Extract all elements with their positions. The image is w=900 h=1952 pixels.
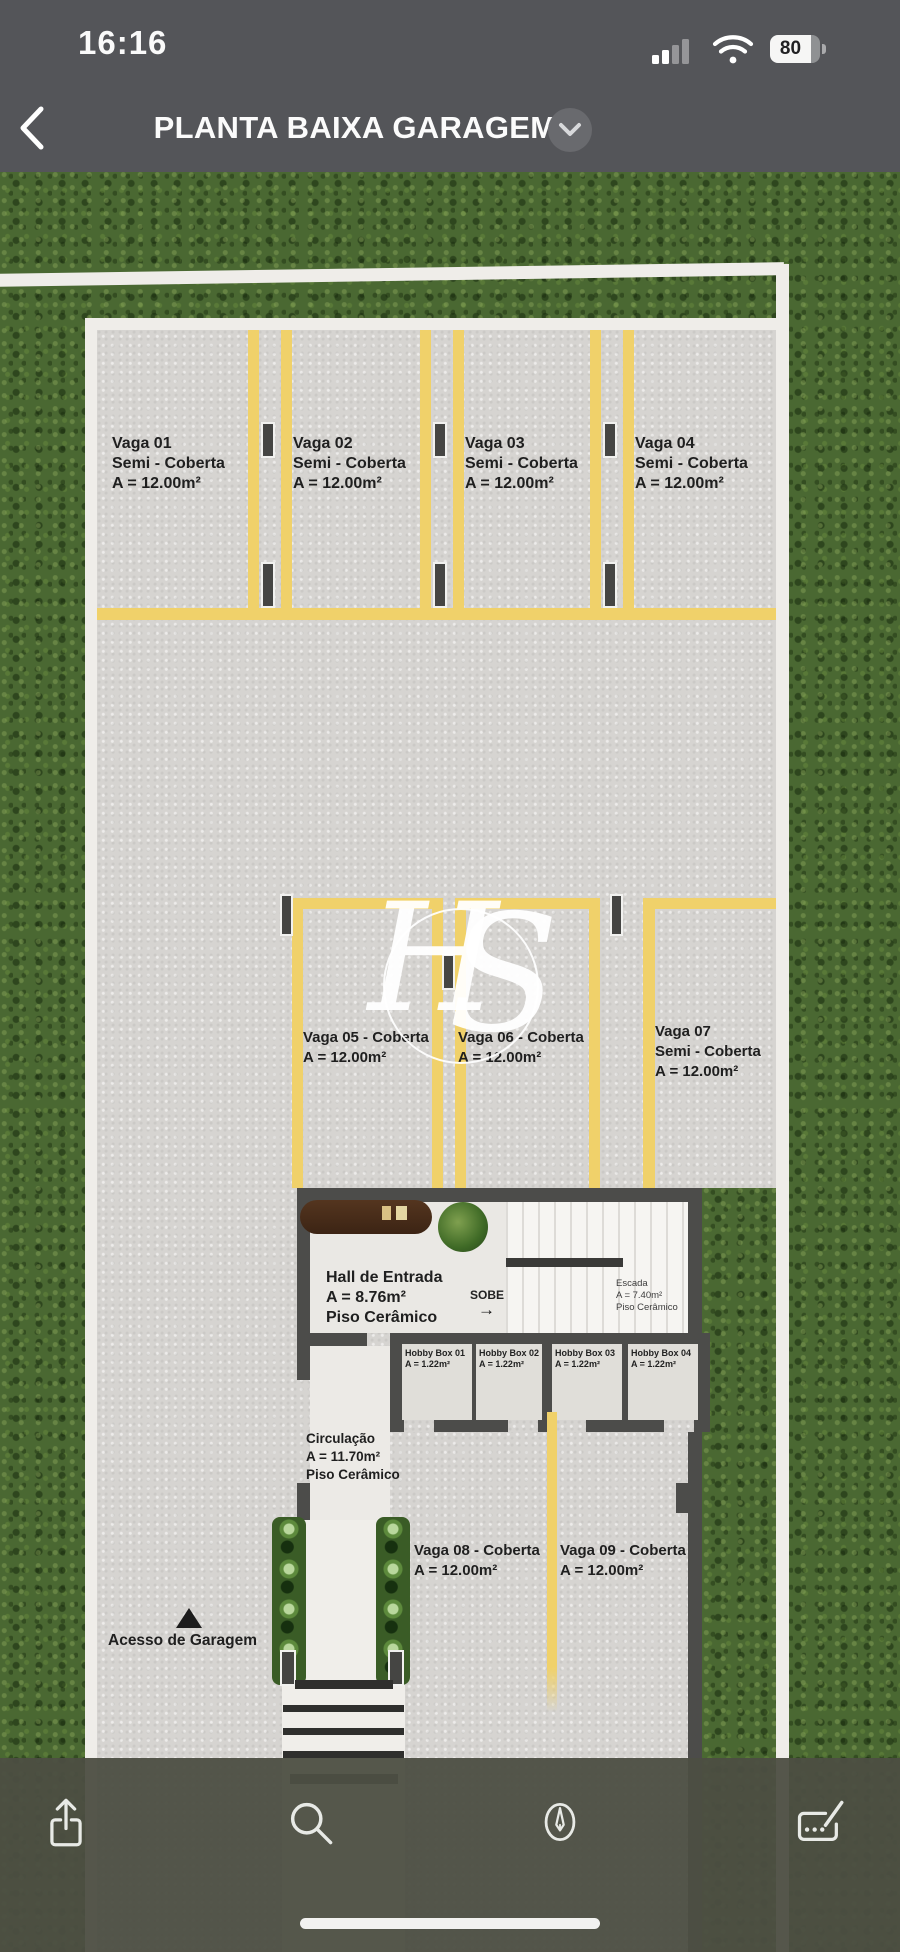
bottom-toolbar <box>0 1758 900 1952</box>
chevron-down-icon <box>558 122 582 138</box>
stripe-line <box>292 898 303 1188</box>
hall-wall-bottom <box>297 1333 367 1346</box>
circulacao-label: CirculaçãoA = 11.70m²Piso Cerâmico <box>306 1430 400 1484</box>
stripe-line <box>547 1412 557 1712</box>
sobe-label: SOBE <box>448 1288 504 1302</box>
stripe-line <box>420 330 431 620</box>
step-edge <box>283 1751 404 1758</box>
watermark-letter-s: S <box>448 894 559 1056</box>
door-opening <box>664 1420 694 1432</box>
column-post <box>261 562 275 608</box>
stripe-line <box>643 898 655 1188</box>
header: 16:16 80 PLANTA BAIXA GARAGEM <box>0 0 900 172</box>
hobby-box-label-01: Hobby Box 01A = 1.22m² <box>405 1348 465 1370</box>
share-button[interactable] <box>40 1796 92 1848</box>
stripe-line <box>281 330 292 620</box>
site-wall-left <box>85 318 97 1952</box>
cellular-signal-icon <box>652 34 700 64</box>
stripe-line <box>590 330 601 620</box>
status-time: 16:16 <box>78 24 167 62</box>
share-icon <box>40 1796 92 1848</box>
battery-percent: 80 <box>770 35 811 63</box>
search-button[interactable] <box>284 1796 336 1848</box>
title-dropdown-button[interactable] <box>548 108 592 152</box>
stall-label-vaga-09: Vaga 09 - CobertaA = 12.00m² <box>560 1541 686 1581</box>
signature-form-button[interactable] <box>793 1796 845 1848</box>
stripe-line <box>248 330 259 620</box>
column-post <box>433 562 447 608</box>
site-wall-top <box>85 318 776 330</box>
stripe-line <box>643 898 776 909</box>
column-post <box>603 422 617 458</box>
door-opening <box>404 1420 434 1432</box>
stall-label-vaga-02: Vaga 02Semi - CobertaA = 12.00m² <box>293 434 406 494</box>
markup-pen-button[interactable] <box>534 1796 586 1848</box>
stripe-line <box>589 898 600 1188</box>
column-post <box>261 422 275 458</box>
column-post <box>610 894 623 936</box>
door-opening <box>508 1420 538 1432</box>
site-wall-right <box>776 264 789 1952</box>
step-edge <box>283 1705 404 1712</box>
bench-decor <box>396 1206 407 1220</box>
step-edge <box>295 1680 393 1689</box>
hobby-box-label-02: Hobby Box 02A = 1.22m² <box>479 1348 539 1370</box>
site-path-diagonal <box>0 262 784 287</box>
markup-pen-icon <box>534 1796 586 1848</box>
phone-screen: 16:16 80 PLANTA BAIXA GARAGEM <box>0 0 900 1952</box>
stairs-handrail <box>506 1258 623 1267</box>
plant <box>438 1202 488 1252</box>
stall-label-vaga-03: Vaga 03Semi - CobertaA = 12.00m² <box>465 434 578 494</box>
page-title: PLANTA BAIXA GARAGEM <box>0 110 710 146</box>
stripe-line <box>453 330 464 620</box>
stall-label-vaga-07: Vaga 07Semi - CobertaA = 12.00m² <box>655 1022 761 1082</box>
door-opening <box>556 1420 586 1432</box>
battery-nub <box>822 44 826 54</box>
stripe-line-horizontal <box>97 608 776 620</box>
home-indicator[interactable] <box>300 1918 600 1929</box>
column-post <box>280 894 293 936</box>
wifi-icon <box>712 33 754 65</box>
column-post <box>280 1650 296 1686</box>
hobby-box-label-03: Hobby Box 03A = 1.22m² <box>555 1348 615 1370</box>
signature-form-icon <box>793 1796 845 1848</box>
sobe-arrow: → <box>478 1300 495 1320</box>
column-post <box>603 562 617 608</box>
bench <box>300 1200 432 1234</box>
column-post <box>433 422 447 458</box>
stripe-line <box>623 330 634 620</box>
escada-label: EscadaA = 7.40m²Piso Cerâmico <box>616 1278 678 1314</box>
acesso-label: Acesso de Garagem <box>108 1632 257 1650</box>
wall-notch <box>676 1483 688 1513</box>
stall-label-vaga-01: Vaga 01Semi - CobertaA = 12.00m² <box>112 434 225 494</box>
floor-plan-image[interactable]: Vaga 01Semi - CobertaA = 12.00m² Vaga 02… <box>0 172 900 1952</box>
access-arrow <box>176 1608 202 1628</box>
bench-decor <box>382 1206 391 1220</box>
hall-label: Hall de EntradaA = 8.76m²Piso Cerâmico <box>326 1268 442 1328</box>
step-edge <box>283 1728 404 1735</box>
stall-label-vaga-04: Vaga 04Semi - CobertaA = 12.00m² <box>635 434 748 494</box>
battery-icon: 80 <box>770 35 820 63</box>
search-icon <box>284 1796 336 1848</box>
stall-label-vaga-08: Vaga 08 - CobertaA = 12.00m² <box>414 1541 540 1581</box>
hobby-box-label-04: Hobby Box 04A = 1.22m² <box>631 1348 691 1370</box>
